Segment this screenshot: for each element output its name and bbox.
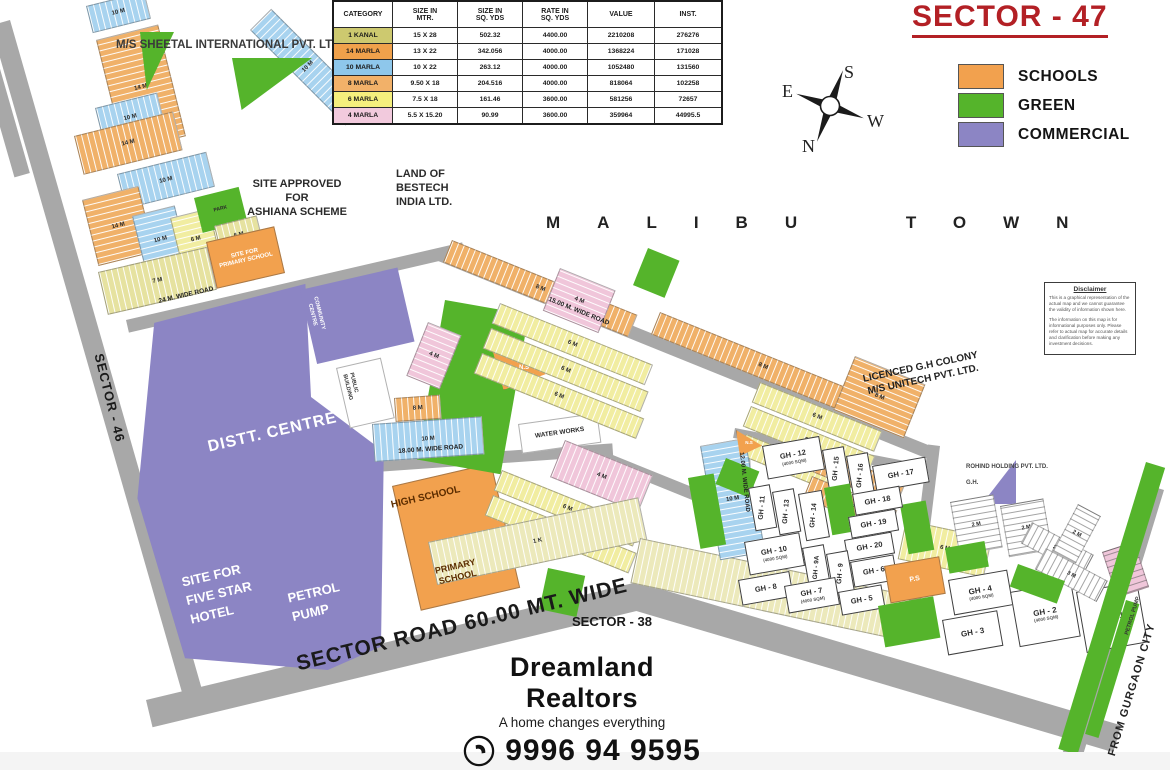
plot-14m-label: 14 M xyxy=(134,83,149,93)
plot-6m-label: 6 M xyxy=(190,235,201,244)
disclaimer-box: Disclaimer This is a graphical represent… xyxy=(1044,282,1136,355)
plot-3m-label: 3 M xyxy=(1066,570,1077,580)
value-cell: 4000.00 xyxy=(523,76,588,92)
plot-10m-label: 10 M xyxy=(159,175,174,185)
park xyxy=(232,58,312,110)
value-cell: 359964 xyxy=(588,108,655,125)
plot-10m-label: 10 M xyxy=(726,495,740,504)
park-label: PARK xyxy=(213,205,228,214)
gh-3: GH - 3 xyxy=(942,610,1003,655)
legend-label: SCHOOLS xyxy=(1018,68,1098,86)
plot-2m-label: 2 M xyxy=(1071,529,1082,539)
legend-item-green: GREEN xyxy=(958,93,1130,118)
disclaimer-text-1: This is a graphical representation of th… xyxy=(1049,295,1131,313)
value-cell: 9.50 X 18 xyxy=(393,76,458,92)
plot-1k-label: 1 K xyxy=(532,537,543,546)
rate-table-row: 8 MARLA9.50 X 18204.5164000.008180641022… xyxy=(333,76,722,92)
rate-table-header: RATE IN SQ. YDS xyxy=(523,1,588,28)
rate-table-header: SIZE IN MTR. xyxy=(393,1,458,28)
water-works-block-label: WATER WORKS xyxy=(535,426,585,440)
gh-8-label: GH - 8 xyxy=(754,582,777,594)
legend-swatch-green xyxy=(958,93,1004,118)
plot-7m-label: 7 M xyxy=(152,276,163,285)
rate-table-header: SIZE IN SQ. YDS xyxy=(458,1,523,28)
park xyxy=(633,248,680,298)
plot-14m-label: 14 M xyxy=(121,138,136,148)
category-cell: 4 MARLA xyxy=(333,108,393,125)
rate-table-row: 10 MARLA10 X 22263.124000.00105248013156… xyxy=(333,60,722,76)
plot-4m-label: 4 M xyxy=(573,295,585,305)
rate-table-header: INST. xyxy=(655,1,723,28)
legend-label: COMMERCIAL xyxy=(1018,126,1130,144)
primary-school-site-label: SITE FOR PRIMARY SCHOOL xyxy=(217,245,273,271)
value-cell: 131560 xyxy=(655,60,723,76)
plot-2m-label: 2 M xyxy=(971,521,981,529)
value-cell: 171028 xyxy=(655,44,723,60)
rohind-gh-label: G.H. xyxy=(966,480,978,488)
plot-6m-label: 6 M xyxy=(553,391,565,401)
gh-3-label: GH - 3 xyxy=(960,626,985,639)
gh-17-label: GH - 17 xyxy=(887,468,914,481)
value-cell: 3600.00 xyxy=(523,108,588,125)
disclaimer-text-2: The information on this map is for infor… xyxy=(1049,317,1131,347)
gh-20-label: GH - 20 xyxy=(856,540,883,553)
value-cell: 3600.00 xyxy=(523,92,588,108)
value-cell: 4000.00 xyxy=(523,44,588,60)
value-cell: 204.516 xyxy=(458,76,523,92)
plot-8m-label: 8 M xyxy=(413,405,423,413)
value-cell: 342.056 xyxy=(458,44,523,60)
value-cell: 1368224 xyxy=(588,44,655,60)
plot-8m-label: 8 M xyxy=(757,362,769,372)
value-cell: 72657 xyxy=(655,92,723,108)
plot-10m-label: 10 M xyxy=(111,7,126,17)
malibu-town-label: MALIBU TOWN xyxy=(546,212,1105,233)
gh-6-label: GH - 6 xyxy=(862,565,885,577)
plot-6m-label: 6 M xyxy=(811,412,823,422)
compass-icon: S E W N xyxy=(772,60,887,155)
value-cell: 2210208 xyxy=(588,28,655,44)
gh-15-label: GH - 15 xyxy=(831,456,841,481)
legend-swatch-schools xyxy=(958,64,1004,89)
plot-10m-label: 10 M xyxy=(421,435,435,443)
bestech-label: LAND OF BESTECH INDIA LTD. xyxy=(396,168,452,209)
gh-park xyxy=(878,596,940,647)
legend-item-commercial: COMMERCIAL xyxy=(958,122,1130,147)
category-cell: 1 KANAL xyxy=(333,28,393,44)
value-cell: 161.46 xyxy=(458,92,523,108)
legend-label: GREEN xyxy=(1018,97,1076,115)
plot-4m-label: 4 M xyxy=(428,351,440,361)
rate-table-row: 1 KANAL15 X 28502.324400.002210208276276 xyxy=(333,28,722,44)
value-cell: 276276 xyxy=(655,28,723,44)
legend: SCHOOLSGREENCOMMERCIAL xyxy=(958,64,1130,151)
page-title: SECTOR - 47 xyxy=(912,0,1108,38)
category-cell: 10 MARLA xyxy=(333,60,393,76)
plot-10m-label: 10 M xyxy=(153,235,168,245)
disclaimer-title: Disclaimer xyxy=(1049,286,1131,293)
plot-14m-label: 14 M xyxy=(111,221,126,231)
category-cell: 8 MARLA xyxy=(333,76,393,92)
plot-4m-label: 4 M xyxy=(596,471,608,481)
value-cell: 818064 xyxy=(588,76,655,92)
value-cell: 15 X 28 xyxy=(393,28,458,44)
compass-w: W xyxy=(867,111,884,131)
rate-table: CATEGORYSIZE IN MTR.SIZE IN SQ. YDSRATE … xyxy=(332,0,723,125)
sector-map: 10 M14 M10 M10 M14 M10 M14 M10 M6 MPARK6… xyxy=(0,0,1170,770)
gh-16-label: GH - 16 xyxy=(856,463,866,488)
sector-38-label: SECTOR - 38 xyxy=(572,614,652,630)
plot-10m: 10 M xyxy=(372,416,484,462)
rate-table-row: 6 MARLA7.5 X 18161.463600.0058125672657 xyxy=(333,92,722,108)
compass-n: N xyxy=(802,136,815,155)
legend-swatch-commercial xyxy=(958,122,1004,147)
gh-primary-school: P.S xyxy=(884,556,946,603)
sheetal-label: M/S SHEETAL INTERNATIONAL PVT. LTD. xyxy=(116,38,344,52)
value-cell: 90.99 xyxy=(458,108,523,125)
rate-table-row: 14 MARLA13 X 22342.0564000.0013682241710… xyxy=(333,44,722,60)
nursery-school-label: N.S xyxy=(745,440,753,445)
gh-4: GH - 4(4000 SQM) xyxy=(948,570,1013,616)
plot-6m-label: 6 M xyxy=(566,339,578,349)
value-cell: 502.32 xyxy=(458,28,523,44)
sector-46-label: SECTOR - 46 xyxy=(90,352,128,444)
brand-tagline: A home changes everything xyxy=(452,715,712,730)
category-cell: 6 MARLA xyxy=(333,92,393,108)
gh-14-label: GH - 14 xyxy=(809,503,819,528)
gh-9a-label: GH - 9A xyxy=(812,556,822,580)
compass-e: E xyxy=(782,81,793,101)
gh-13-label: GH - 13 xyxy=(782,499,792,524)
value-cell: 44995.5 xyxy=(655,108,723,125)
value-cell: 581256 xyxy=(588,92,655,108)
gh-5-label: GH - 5 xyxy=(850,594,873,606)
gh-11-label: GH - 11 xyxy=(758,495,768,520)
rate-table-header: CATEGORY xyxy=(333,1,393,28)
gh-18-label: GH - 18 xyxy=(864,494,891,507)
branding: Dreamland Realtors A home changes everyt… xyxy=(452,652,712,768)
rate-table-row: 4 MARLA5.5 X 15.2090.993600.003599644499… xyxy=(333,108,722,125)
category-cell: 14 MARLA xyxy=(333,44,393,60)
gh-primary-school-label: P.S xyxy=(909,575,921,585)
gh-9-label: GH - 9 xyxy=(836,563,846,584)
value-cell: 4400.00 xyxy=(523,28,588,44)
rohind-label: ROHIND HOLDING PVT. LTD. xyxy=(966,464,1048,472)
gh-13: GH - 13 xyxy=(772,488,801,535)
value-cell: 263.12 xyxy=(458,60,523,76)
value-cell: 4000.00 xyxy=(523,60,588,76)
value-cell: 7.5 X 18 xyxy=(393,92,458,108)
brand-phone-row: 9996 94 9595 xyxy=(452,734,712,768)
value-cell: 5.5 X 15.20 xyxy=(393,108,458,125)
plot-8m: 8 M xyxy=(394,395,442,422)
plot-6m-label: 6 M xyxy=(560,365,572,375)
value-cell: 10 X 22 xyxy=(393,60,458,76)
value-cell: 13 X 22 xyxy=(393,44,458,60)
plot-8m-label: 8 M xyxy=(534,284,546,294)
value-cell: 1052480 xyxy=(588,60,655,76)
compass-s: S xyxy=(844,62,854,82)
legend-item-schools: SCHOOLS xyxy=(958,64,1130,89)
phone-icon xyxy=(463,735,495,767)
brand-phone: 9996 94 9595 xyxy=(505,734,701,768)
value-cell: 102258 xyxy=(655,76,723,92)
gh-19-label: GH - 19 xyxy=(860,517,887,530)
brand-name: Dreamland Realtors xyxy=(452,652,712,714)
ashiana-label: SITE APPROVED FOR ASHIANA SCHEME xyxy=(230,178,364,219)
rate-table-header: VALUE xyxy=(588,1,655,28)
